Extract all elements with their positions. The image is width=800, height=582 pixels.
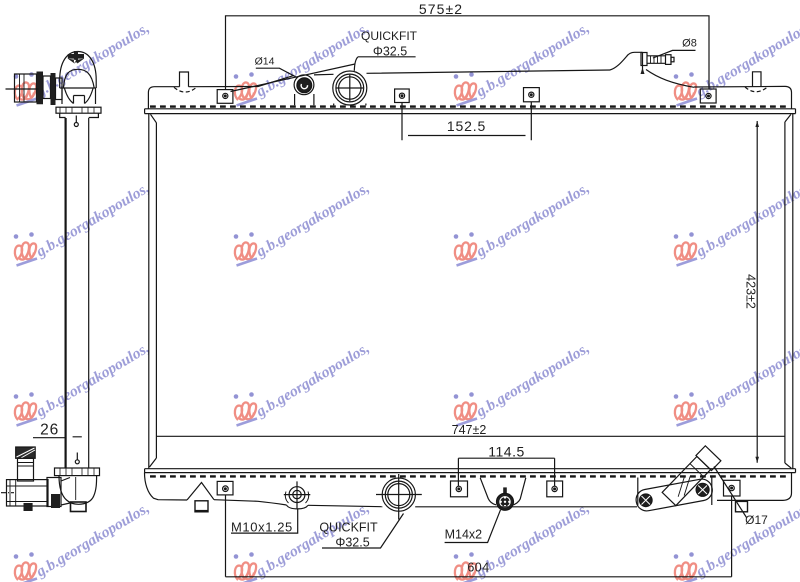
svg-text:Ø8: Ø8 (682, 37, 697, 49)
svg-text:Ø14: Ø14 (255, 55, 275, 67)
svg-text:26: 26 (40, 422, 59, 439)
svg-text:M10x1.25: M10x1.25 (231, 519, 293, 534)
svg-text:M14x2: M14x2 (445, 528, 483, 542)
svg-text:575±2: 575±2 (419, 1, 463, 17)
svg-text:QUICKFIT: QUICKFIT (361, 29, 418, 43)
svg-text:Ø17: Ø17 (745, 513, 768, 527)
svg-text:QUICKFIT: QUICKFIT (319, 520, 378, 534)
svg-text:Φ32.5: Φ32.5 (335, 535, 369, 549)
svg-text:423±2: 423±2 (744, 274, 758, 309)
svg-text:604: 604 (467, 561, 489, 575)
svg-text:152.5: 152.5 (447, 118, 486, 134)
svg-text:114.5: 114.5 (488, 444, 525, 460)
svg-text:747±2: 747±2 (452, 423, 487, 437)
